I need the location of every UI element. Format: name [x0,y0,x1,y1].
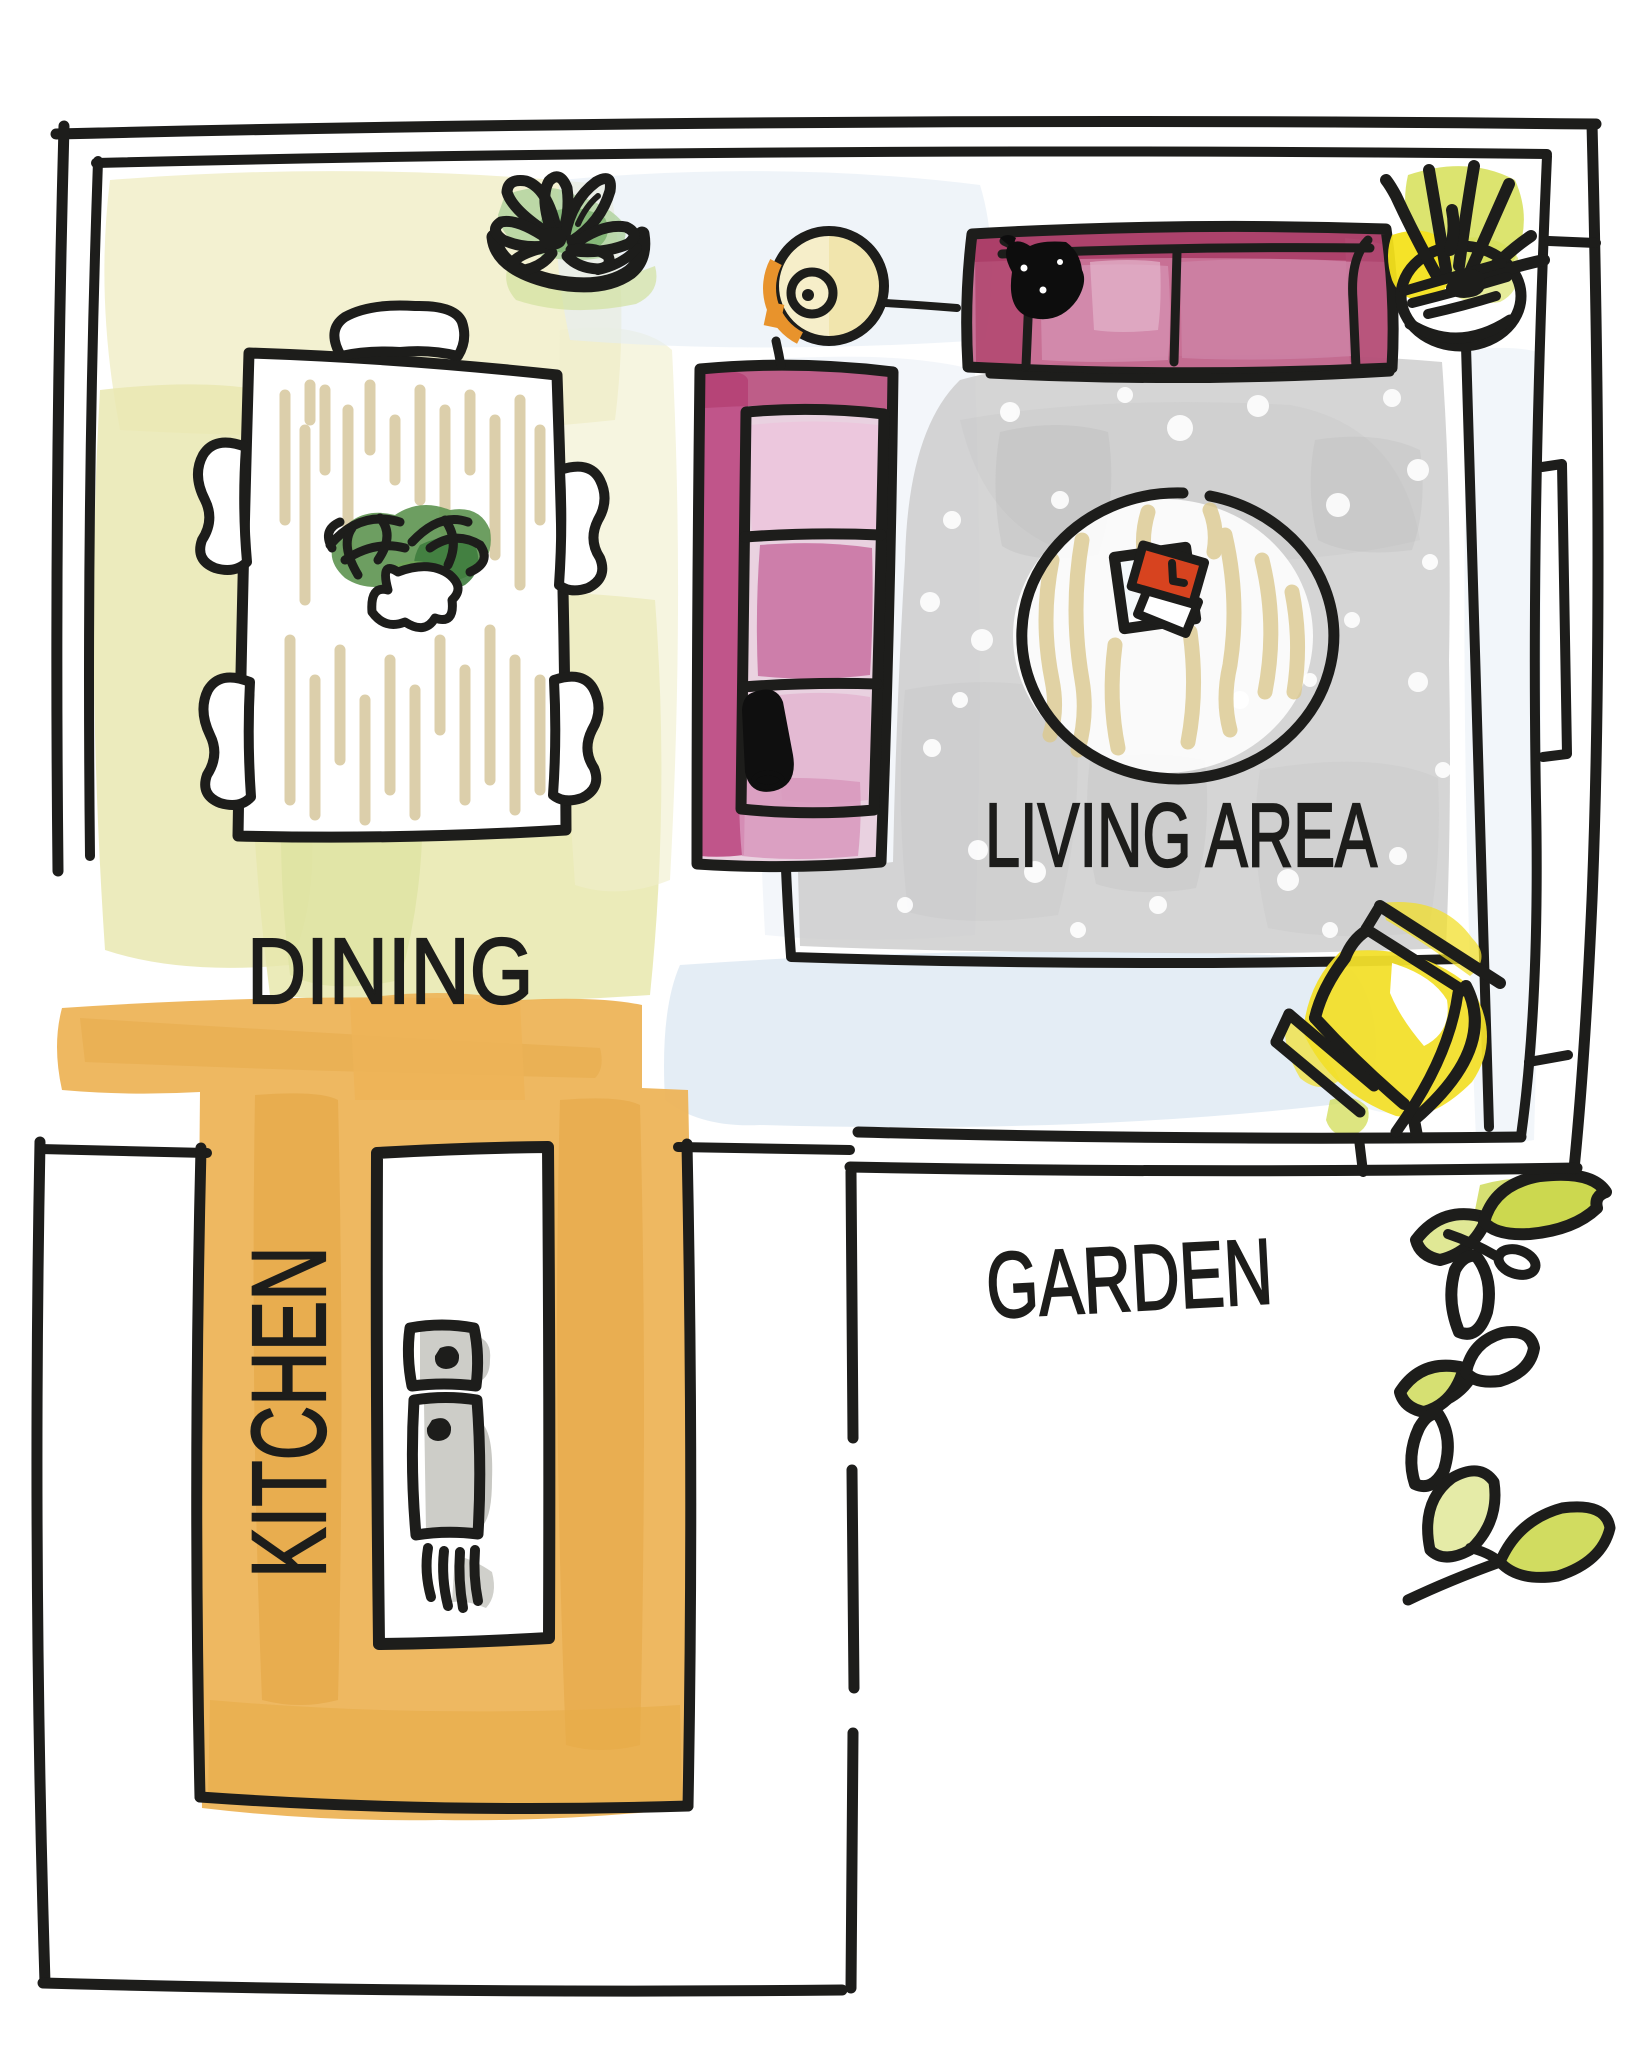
svg-text:GARDEN: GARDEN [984,1220,1275,1338]
svg-text:KITCHEN: KITCHEN [231,1246,348,1578]
svg-text:LIVING AREA: LIVING AREA [985,786,1377,886]
svg-text:DINING: DINING [247,919,533,1023]
